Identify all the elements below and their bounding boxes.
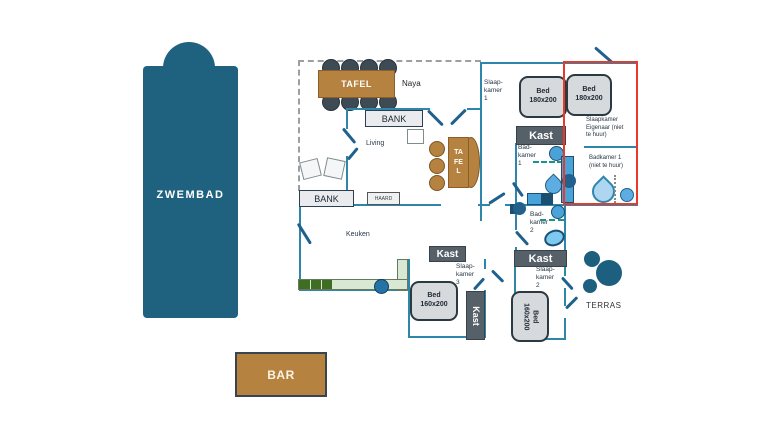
- closet-label: Kast: [529, 130, 553, 142]
- terras-label: TERRAS: [586, 301, 621, 311]
- closet-label: Kast: [529, 253, 553, 265]
- bed-label: Bed 160x200: [521, 303, 539, 330]
- floor-plan-drawing: ZWEMBAD BAR TAFEL Naya: [0, 0, 780, 439]
- kitchen-bank-label: BANK: [314, 194, 339, 204]
- chair-icon: [429, 175, 445, 191]
- chair-icon: [429, 141, 445, 157]
- fireplace-label: HAARD: [375, 196, 393, 202]
- toilet-icon: [513, 202, 526, 215]
- terras-table-icon: [583, 279, 597, 293]
- bedroom1-closet: Kast: [516, 126, 566, 145]
- dashed-line: [540, 219, 564, 221]
- bedroom2-label: Slaap- kamer 2: [536, 266, 555, 290]
- bathroom2-label: Bad- kamer 2: [530, 211, 548, 235]
- stove-icon: [322, 280, 332, 289]
- door-swing: [561, 276, 574, 290]
- door-swing: [515, 230, 529, 245]
- bar: BAR: [235, 352, 327, 397]
- owner-area-red-outline: [563, 61, 638, 205]
- sink-icon: [374, 279, 389, 294]
- fireplace: HAARD: [367, 192, 400, 205]
- stove-icon: [299, 280, 310, 289]
- terras-table-icon: [596, 260, 622, 286]
- door-swing: [427, 109, 444, 126]
- wall-segment: [346, 108, 348, 129]
- bedroom3-closet-side: Kast: [466, 291, 485, 340]
- fixture-icon: [551, 205, 565, 219]
- bedroom3-bed: Bed 160x200: [410, 281, 458, 321]
- kitchen-label: Keuken: [346, 231, 370, 240]
- chair-icon: [429, 158, 445, 174]
- bedroom3-label: Slaap- kamer 3: [456, 263, 475, 287]
- wall-segment: [484, 259, 486, 269]
- living-label: Living: [366, 140, 384, 149]
- door-swing: [488, 192, 506, 205]
- door-swing: [342, 128, 357, 144]
- pool-label: ZWEMBAD: [143, 189, 238, 201]
- wall-segment: [480, 62, 482, 221]
- door-swing: [347, 147, 359, 160]
- bedroom2-closet: Kast: [514, 250, 567, 267]
- wall-segment: [564, 288, 566, 306]
- wall-segment: [564, 318, 566, 340]
- chair-icon: [323, 157, 346, 180]
- living-bank: BANK: [365, 110, 423, 127]
- side-table: [407, 129, 424, 144]
- door-swing: [512, 182, 524, 198]
- naya-dining-table: TAFEL: [318, 70, 395, 98]
- naya-outline-left: [298, 60, 300, 191]
- living-table-label: TAFEL: [453, 148, 465, 176]
- dashed-line: [533, 161, 563, 163]
- chair-icon: [299, 158, 322, 180]
- naya-table-label: TAFEL: [341, 79, 372, 89]
- bathroom1-label: Bad- kamer 1: [518, 144, 536, 168]
- closet-label: Kast: [437, 249, 459, 260]
- naya-label: Naya: [402, 79, 421, 89]
- bedroom1-label: Slaap- kamer 1: [484, 79, 503, 103]
- kitchen-bank: BANK: [299, 190, 354, 207]
- closet-label: Kast: [471, 306, 481, 326]
- bar-label: BAR: [267, 368, 295, 382]
- living-bank-label: BANK: [382, 114, 407, 124]
- door-swing: [450, 109, 467, 126]
- door-swing: [491, 269, 504, 282]
- fixture-icon: [541, 194, 552, 204]
- bedroom1-bed: Bed 180x200: [519, 76, 567, 118]
- stove-icon: [311, 280, 321, 289]
- wall-segment: [478, 204, 490, 206]
- wall-segment: [467, 108, 482, 110]
- living-dining-table: TAFEL: [448, 137, 469, 188]
- door-swing: [565, 296, 578, 309]
- bedroom3-closet-top: Kast: [429, 246, 466, 262]
- wall-segment: [346, 156, 348, 192]
- bedroom2-bed: Bed 160x200: [511, 291, 549, 342]
- wall-segment: [299, 204, 301, 291]
